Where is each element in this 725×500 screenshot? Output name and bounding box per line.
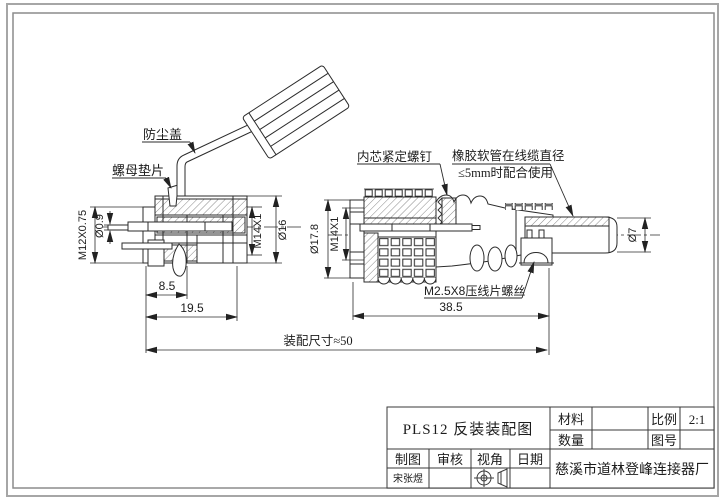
company-name: 慈溪市道林登峰连接器厂 [555, 461, 709, 478]
dim-right-flange-diameter: Ø17.8 [309, 224, 321, 254]
bellows-bump [488, 247, 502, 271]
dust-cover-assembly [177, 65, 350, 196]
dim-boot-diameter: Ø7 [627, 228, 639, 243]
dim-left-len-front: 8.5 [159, 279, 176, 293]
dim-pin-diameter: Ø0.9 [94, 214, 106, 238]
bellows-bump [505, 245, 517, 267]
dim-left-coupling-thread: M14X1 [252, 214, 264, 249]
view-angle-label: 视角 [477, 452, 503, 467]
label-rubber-hose-line2: ≤5mm时配合使用 [458, 165, 553, 180]
engineering-drawing-sheet: 防尘盖 螺母垫片 内芯紧定螺钉 橡胶软管在线缆直径 ≤5mm时配合使用 M2.5… [0, 0, 725, 500]
pin-tip [108, 225, 128, 230]
drawing-canvas: 防尘盖 螺母垫片 内芯紧定螺钉 橡胶软管在线缆直径 ≤5mm时配合使用 M2.5… [0, 0, 725, 500]
contact-block [378, 237, 436, 278]
label-rubber-hose-line1: 橡胶软管在线缆直径 [452, 148, 565, 163]
label-crimp-screw: M2.5X8压线片螺丝 [424, 284, 525, 298]
dust-cover-strap [177, 124, 253, 196]
drawn-by-name: 宋张煜 [393, 472, 423, 485]
left-view-socket-section [103, 185, 302, 276]
lower-pin [122, 243, 172, 249]
right-view-plug-section [328, 189, 660, 284]
drawn-label: 制图 [395, 452, 421, 467]
drawing-no-label: 图号 [651, 433, 677, 448]
dim-left-len-total: 19.5 [180, 301, 204, 315]
clamp-screw-left [527, 230, 532, 238]
clamp-screw-right [539, 230, 544, 238]
center-rod [360, 224, 472, 231]
dim-right-len-total: 38.5 [439, 300, 463, 314]
checked-label: 审核 [437, 452, 463, 467]
dust-cover-cap [242, 65, 350, 159]
scale-label: 比例 [651, 412, 677, 427]
label-nut-washer: 螺母垫片 [112, 163, 164, 178]
label-core-set-screw: 内芯紧定螺钉 [357, 149, 433, 164]
center-pin [128, 222, 232, 231]
scale-value: 2:1 [689, 412, 706, 427]
material-label: 材料 [558, 412, 584, 427]
dim-left-thread: M12X0.75 [77, 210, 89, 260]
dim-assembly-length: 装配尺寸≈50 [283, 334, 352, 348]
label-dust-cover: 防尘盖 [143, 127, 182, 142]
quantity-label: 数量 [558, 433, 584, 448]
bellows-bump [470, 245, 484, 271]
date-label: 日期 [517, 452, 543, 467]
dim-left-body-diameter: Ø16 [277, 220, 289, 241]
drawing-title: PLS12 反装装配图 [403, 421, 534, 438]
dim-right-coupling-thread: M14X1 [329, 217, 341, 252]
